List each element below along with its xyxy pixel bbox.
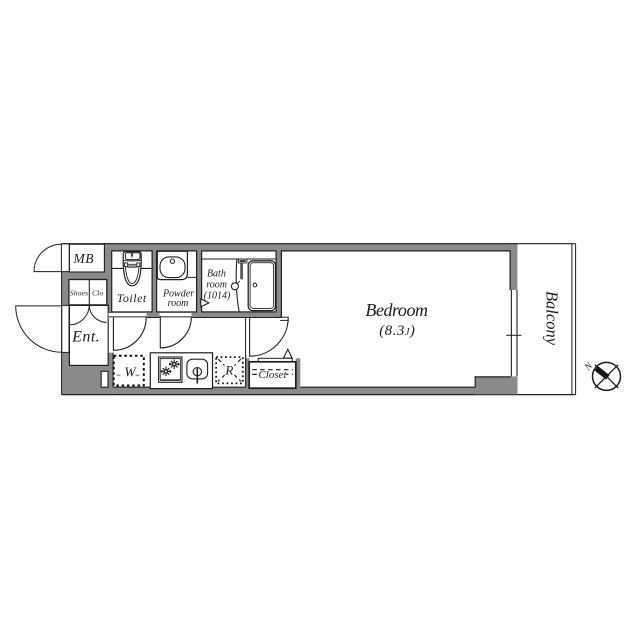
svg-text:W: W [124,364,137,379]
svg-text:Bath: Bath [207,268,226,279]
svg-text:MB: MB [73,251,95,266]
svg-text:Ent.: Ent. [71,328,100,345]
svg-text:(8.3J): (8.3J) [379,323,415,339]
svg-text:R: R [224,362,233,377]
svg-text:room: room [206,279,227,290]
svg-text:Toilet: Toilet [117,291,147,305]
svg-text:Shoes: Shoes [70,288,88,297]
svg-text:(1014): (1014) [204,290,231,301]
svg-text:Balcony: Balcony [542,291,561,346]
svg-text:room: room [168,298,189,309]
svg-text:Closet: Closet [258,369,287,381]
svg-text:Clo: Clo [92,288,103,297]
svg-text:Bedroom: Bedroom [365,300,428,320]
